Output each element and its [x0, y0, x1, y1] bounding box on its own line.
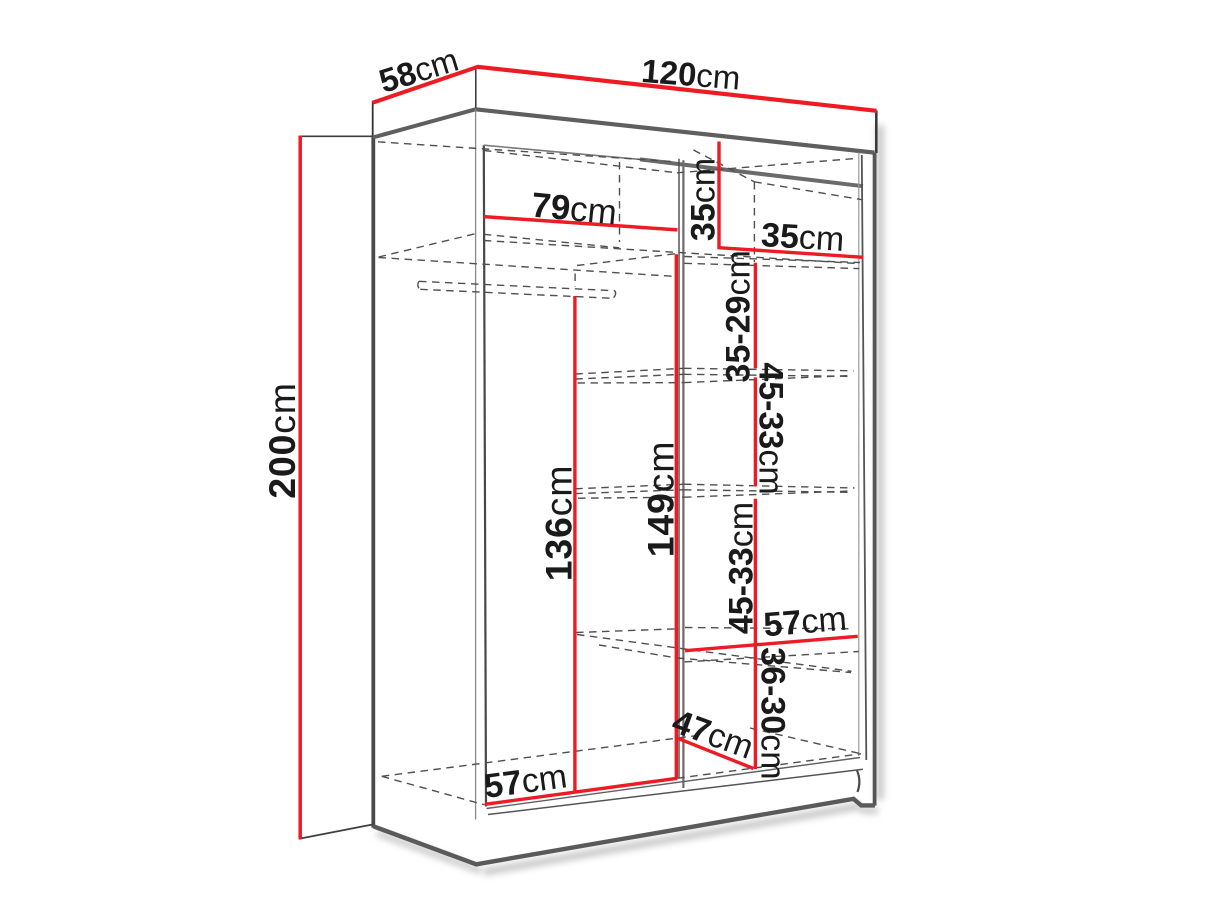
svg-text:57cm: 57cm — [762, 600, 848, 645]
svg-text:47cm: 47cm — [667, 703, 758, 767]
svg-text:200cm: 200cm — [261, 382, 303, 499]
svg-text:45-33cm: 45-33cm — [752, 362, 790, 494]
svg-text:149cm: 149cm — [640, 441, 682, 558]
svg-text:45-33cm: 45-33cm — [723, 502, 761, 634]
svg-text:136cm: 136cm — [538, 465, 580, 582]
svg-text:58cm: 58cm — [375, 41, 463, 100]
svg-text:79cm: 79cm — [530, 186, 619, 233]
svg-text:35cm: 35cm — [760, 216, 845, 259]
svg-text:120cm: 120cm — [640, 52, 742, 97]
svg-text:36-30cm: 36-30cm — [754, 647, 792, 779]
svg-text:35cm: 35cm — [685, 158, 723, 241]
